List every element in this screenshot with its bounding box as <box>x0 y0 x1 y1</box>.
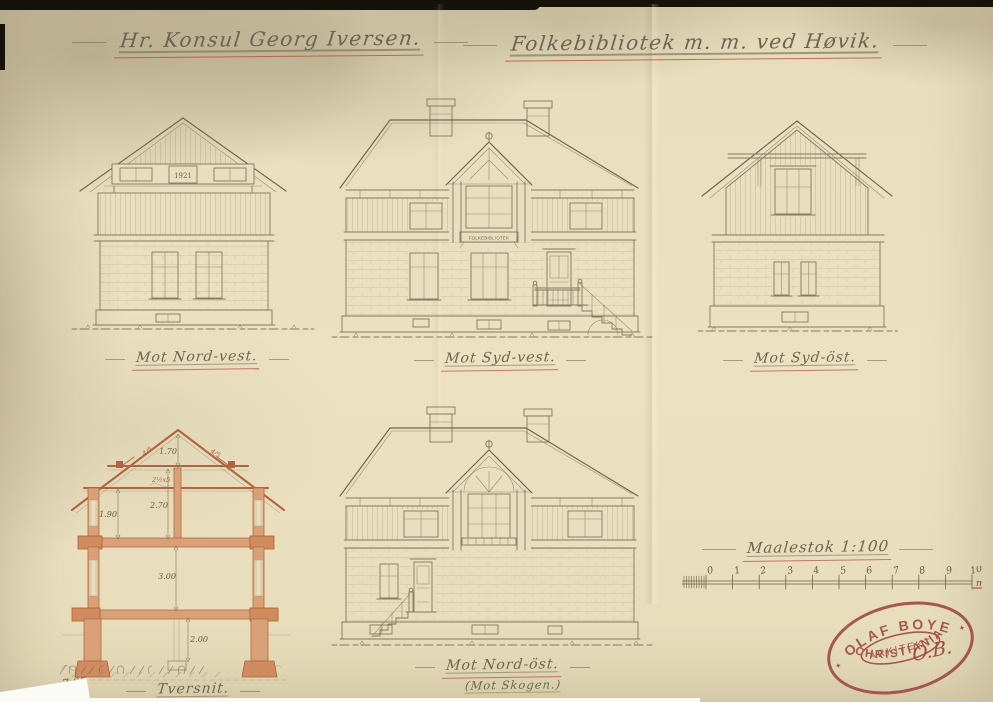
scale-unit: m <box>976 578 982 589</box>
scan-edge-top-left <box>0 0 540 10</box>
window <box>771 260 792 297</box>
main-floor <box>72 608 278 621</box>
scale-tick-0: 0 <box>706 566 715 577</box>
scale-tick-6: 6 <box>865 566 874 577</box>
scale-label: Maalestok 1:100 <box>705 538 930 561</box>
caption-southeast: Mot Syd-öst. <box>705 350 905 371</box>
flourish-line <box>269 359 289 360</box>
plinth <box>708 306 886 327</box>
flourish-line <box>566 360 586 361</box>
pencil-scribbles <box>56 660 256 678</box>
flourish-line <box>415 667 435 668</box>
upper-wall <box>726 130 868 235</box>
caption-northeast-sub: (Mot Skogen.) <box>430 678 595 696</box>
stone-wall <box>346 240 634 316</box>
chimney <box>427 407 455 442</box>
stamp-star-icon: ✦ <box>834 661 843 671</box>
dim-basement: 2.00 <box>189 635 208 644</box>
caption-southwest-text: Mot Syd-vest. <box>441 349 560 372</box>
basement-window <box>548 626 562 634</box>
dim-main-floor: 3.00 <box>158 572 176 581</box>
upper-wall <box>98 193 270 235</box>
door <box>410 559 436 612</box>
scan-edge-left <box>0 24 5 70</box>
plinth <box>340 316 640 332</box>
basement-window <box>548 321 570 330</box>
grass-marks <box>86 325 296 328</box>
flourish-line <box>723 360 743 361</box>
dim-ridge: 1.70 <box>159 447 177 456</box>
elevation-drawing-northwest: 1921 <box>68 112 318 347</box>
stone-wall <box>714 242 880 306</box>
dim-timber-note: 2½x5 <box>151 476 170 484</box>
plinth <box>93 310 275 325</box>
flourish-line <box>434 42 468 43</box>
chimney <box>524 101 552 136</box>
basement-window <box>472 625 498 634</box>
flourish-line <box>893 45 927 46</box>
flourish-line <box>570 667 590 668</box>
basement-window <box>413 319 429 327</box>
plinth <box>340 622 640 639</box>
basement-window <box>156 314 180 322</box>
dimensions: 1.70 4/5 4/5 2½x5 1.90 2.70 3.00 2.00 <box>99 434 222 662</box>
loft-floor <box>78 536 274 549</box>
grass-marks <box>360 641 638 644</box>
window <box>402 509 440 539</box>
flourish-line <box>72 42 106 43</box>
title-project: Folkebibliotek m. m. ved Høvik. <box>500 30 890 60</box>
cross-section-drawing: 1.70 4/5 4/5 2½x5 1.90 2.70 3.00 2.00 <box>60 424 292 686</box>
dim-loft-side: 1.90 <box>99 510 117 519</box>
window <box>798 260 819 297</box>
gable-band: 1921 <box>104 164 262 193</box>
flourish-line <box>702 549 736 550</box>
architect-stamp: OLAF BOYE CHRISTIANIA ARKITEKT ✦ ✦ <box>809 581 992 702</box>
caption-northwest: Mot Nord-vest. <box>97 349 297 370</box>
stone-wall <box>100 241 268 310</box>
scale-tick-10: 10 <box>969 566 982 577</box>
drawing-sheet: Hr. Konsul Georg Iversen. Folkebibliotek… <box>0 0 993 702</box>
flourish-line <box>463 45 497 46</box>
cornice <box>94 235 274 241</box>
title-client: Hr. Konsul Georg Iversen. <box>85 27 455 57</box>
title-project-text: Folkebibliotek m. m. ved Høvik. <box>505 28 885 61</box>
scale-tick-5: 5 <box>839 566 848 577</box>
basement-window <box>370 625 392 634</box>
scale-tick-1: 1 <box>733 566 742 577</box>
flourish-line <box>867 360 887 361</box>
grass-marks <box>354 333 634 336</box>
caption-northwest-text: Mot Nord-vest. <box>132 348 261 371</box>
title-client-text: Hr. Konsul Georg Iversen. <box>114 26 427 59</box>
scale-tick-7: 7 <box>892 566 901 577</box>
stone-wall <box>346 548 634 622</box>
gable-dormer: FOLKEBIBLIOTEK <box>446 132 532 248</box>
date-plaque-text: 1921 <box>174 172 192 180</box>
chimney <box>524 409 552 442</box>
gable-dormer <box>446 440 532 550</box>
flourish-line <box>105 359 125 360</box>
chimney <box>427 99 455 136</box>
basement-window <box>477 320 501 329</box>
caption-southwest: Mot Syd-vest. <box>390 350 610 371</box>
window <box>408 201 444 231</box>
window <box>407 251 441 301</box>
dim-loft-center: 2.70 <box>149 501 168 510</box>
caption-northeast-sub-text: (Mot Skogen.) <box>461 677 565 696</box>
cornice <box>712 235 884 242</box>
flourish-line <box>414 360 434 361</box>
flourish-line <box>126 691 146 692</box>
caption-northeast: Mot Nord-öst. <box>395 657 610 678</box>
dim-rafter-right: 4/5 <box>208 446 222 459</box>
window <box>566 509 604 539</box>
attic-window <box>770 165 816 217</box>
window <box>377 562 401 600</box>
grass-marks <box>712 327 872 330</box>
scale-tick-9: 9 <box>945 566 954 577</box>
caption-southeast-text: Mot Syd-öst. <box>750 349 860 372</box>
flourish-line <box>899 549 933 550</box>
window <box>468 251 511 301</box>
basement-window <box>782 312 808 322</box>
elevation-drawing-southeast <box>698 116 898 344</box>
stamp-star-icon: ✦ <box>958 623 967 633</box>
scale-tick-3: 3 <box>786 566 795 577</box>
library-sign-text: FOLKEBIBLIOTEK <box>469 236 510 241</box>
scale-label-text: Maalestok 1:100 <box>742 537 892 562</box>
scan-edge-white <box>60 698 700 702</box>
caption-northeast-text: Mot Nord-öst. <box>442 656 563 679</box>
window <box>568 201 604 231</box>
elevation-drawing-southwest: FOLKEBIBLIOTEK <box>330 90 655 345</box>
scale-tick-8: 8 <box>918 566 927 577</box>
elevation-drawing-northeast <box>330 396 655 654</box>
flourish-line <box>240 691 260 692</box>
